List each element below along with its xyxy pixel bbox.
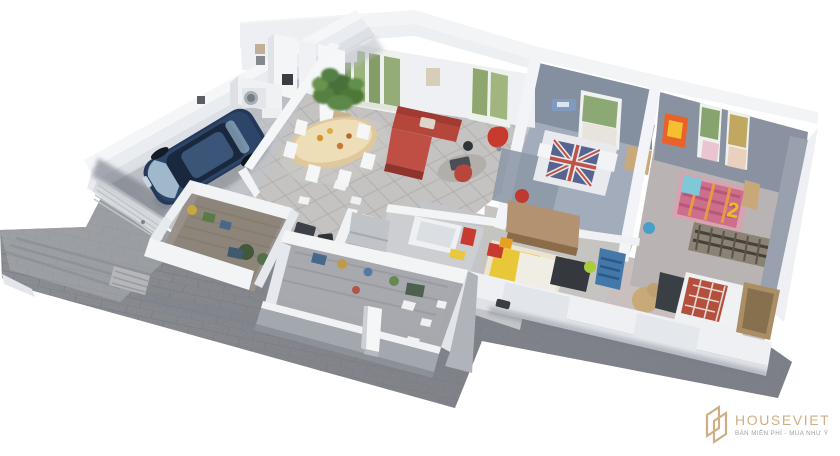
svg-text:BÁN MIỀN PHÍ - MUA NHƯ Ý: BÁN MIỀN PHÍ - MUA NHƯ Ý (735, 430, 828, 437)
svg-text:HOUSEVIET: HOUSEVIET (735, 412, 830, 428)
